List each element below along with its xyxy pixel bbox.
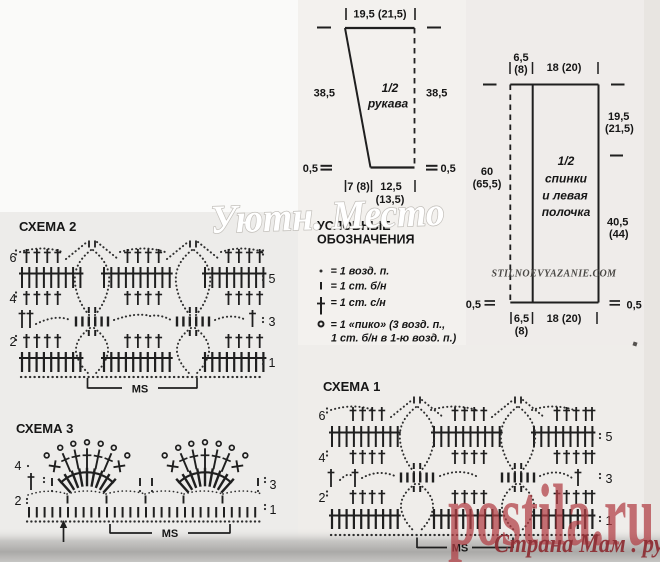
svg-text:60: 60 xyxy=(481,166,493,178)
svg-text:и левая: и левая xyxy=(542,189,587,203)
svg-text:6: 6 xyxy=(10,251,17,265)
svg-text:2: 2 xyxy=(319,491,326,505)
svg-text:(21,5): (21,5) xyxy=(605,123,634,135)
svg-text:0,5: 0,5 xyxy=(441,163,456,175)
svg-text:19,5 (21,5): 19,5 (21,5) xyxy=(353,9,407,21)
svg-text:= 1 ст. с/н: = 1 ст. с/н xyxy=(331,297,387,309)
svg-text:Уютн. Место: Уютн. Место xyxy=(210,189,445,242)
svg-text:0,5: 0,5 xyxy=(303,163,318,175)
svg-text:2: 2 xyxy=(15,494,22,508)
svg-text:4: 4 xyxy=(319,451,326,465)
svg-text:3: 3 xyxy=(269,315,276,329)
svg-text:3: 3 xyxy=(270,478,277,492)
svg-text:СХЕМА 2: СХЕМА 2 xyxy=(19,219,76,234)
svg-text:5: 5 xyxy=(606,430,613,444)
svg-text:6,5: 6,5 xyxy=(514,313,529,325)
svg-text:6,5: 6,5 xyxy=(513,52,528,64)
svg-text:2: 2 xyxy=(10,335,17,349)
svg-text:0,5: 0,5 xyxy=(466,299,481,311)
svg-text:= 1 возд. п.: = 1 возд. п. xyxy=(331,266,390,278)
svg-text:(8): (8) xyxy=(515,326,529,338)
svg-text:1/2: 1/2 xyxy=(558,154,575,168)
svg-text:STILNOEVYAZANIE.COM: STILNOEVYAZANIE.COM xyxy=(492,269,618,280)
svg-text:40,5: 40,5 xyxy=(607,217,628,229)
svg-text:полочка: полочка xyxy=(542,205,591,219)
svg-text:5: 5 xyxy=(269,272,276,286)
svg-text:СХЕМА 3: СХЕМА 3 xyxy=(16,421,73,436)
svg-text:19,5: 19,5 xyxy=(608,111,629,123)
svg-text:рукава: рукава xyxy=(367,97,409,111)
svg-text:4: 4 xyxy=(15,459,22,473)
svg-text:1 ст. б/н в 1-ю возд. п.): 1 ст. б/н в 1-ю возд. п.) xyxy=(331,333,457,345)
svg-text:спинки: спинки xyxy=(545,172,588,186)
svg-text:(44): (44) xyxy=(609,229,629,241)
svg-text:38,5: 38,5 xyxy=(314,88,335,100)
svg-text:MS: MS xyxy=(162,528,179,540)
svg-text:18 (20): 18 (20) xyxy=(547,313,582,325)
svg-text:0,5: 0,5 xyxy=(627,300,642,312)
svg-text:1: 1 xyxy=(269,356,276,370)
svg-text:= 1 «пико» (3 возд. п.,: = 1 «пико» (3 возд. п., xyxy=(331,319,446,331)
svg-text:СХЕМА 1: СХЕМА 1 xyxy=(323,379,380,394)
svg-text:Страна Мам . ру: Страна Мам . ру xyxy=(494,530,660,559)
svg-text:(8): (8) xyxy=(514,64,528,76)
svg-text:38,5: 38,5 xyxy=(426,88,447,100)
svg-text:= 1 ст. б/н: = 1 ст. б/н xyxy=(331,281,387,293)
svg-text:1: 1 xyxy=(270,503,277,517)
svg-text:6: 6 xyxy=(319,409,326,423)
svg-text:18 (20): 18 (20) xyxy=(547,62,582,74)
svg-text:1/2: 1/2 xyxy=(382,81,399,95)
svg-text:4: 4 xyxy=(10,292,17,306)
svg-text:MS: MS xyxy=(132,384,149,396)
svg-text:(65,5): (65,5) xyxy=(473,179,502,191)
